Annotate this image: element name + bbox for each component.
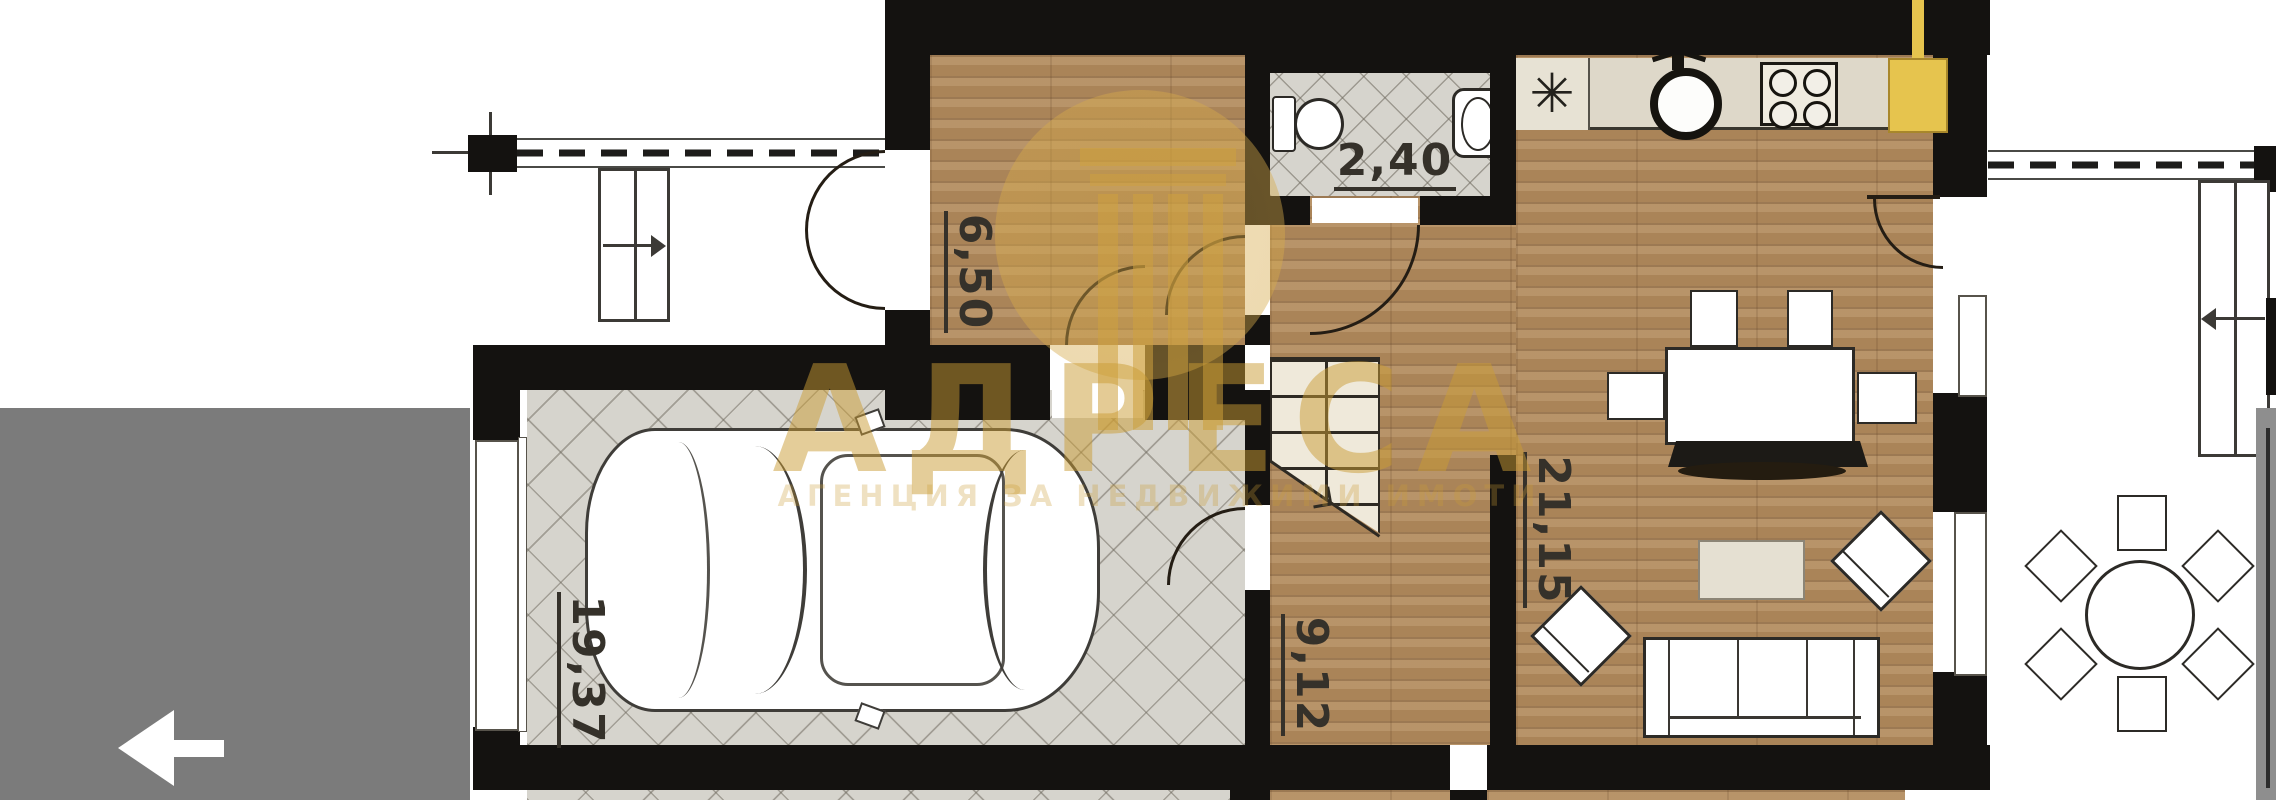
entrance-walkway — [598, 168, 670, 322]
hall-door-opening — [1247, 227, 1268, 313]
lower-unit-wall-pier — [1230, 790, 1270, 800]
bathroom-top-wall — [1270, 55, 1516, 73]
right-exterior-wall — [1933, 393, 1987, 512]
bathroom-bottom-wall — [1420, 196, 1516, 225]
garage-front-wall — [1145, 345, 1245, 390]
corridor-area-label: 9,12 — [1284, 613, 1334, 737]
dining-chair — [1690, 290, 1738, 347]
sofa — [1643, 637, 1880, 738]
terrace-chair — [2024, 627, 2098, 701]
terrace-chair — [2181, 627, 2255, 701]
walkway-arrow-left-icon — [2201, 308, 2216, 330]
stove-burner — [1803, 69, 1831, 97]
terrace-chair — [2181, 529, 2255, 603]
fence-post-tick — [489, 172, 492, 195]
bathroom-area-label: 2,40 — [1340, 138, 1450, 188]
staircase-direction-arrow-icon — [1310, 486, 1332, 508]
back-button[interactable] — [100, 700, 250, 795]
terrace-table — [2085, 560, 2195, 670]
tv-stand — [1678, 462, 1846, 480]
hall-garage-wall — [1145, 390, 1245, 420]
neighbor-wall-sliver — [2266, 298, 2276, 395]
hall-right-wall-upper — [1245, 55, 1270, 225]
boiler-icon: ✳ — [1529, 67, 1574, 121]
garage-left-wall-upper — [473, 345, 520, 440]
stove-burner — [1769, 69, 1797, 97]
bottom-exterior-wall — [473, 745, 1450, 790]
hall-area-label: 6,50 — [947, 217, 997, 327]
stove — [1760, 62, 1838, 126]
entry-left-wall-upper — [885, 0, 930, 150]
rug — [1698, 540, 1805, 600]
right-exterior-wall — [1933, 672, 1987, 745]
bathroom-bottom-wall — [1270, 196, 1310, 225]
stove-burner — [1769, 101, 1797, 129]
bottom-wall-gap — [1450, 745, 1487, 790]
bottom-exterior-wall — [1487, 745, 1990, 790]
entrance-door-swing — [805, 230, 885, 310]
garage-front-wall — [473, 345, 1050, 390]
garage-area-label: 19,37 — [560, 600, 610, 740]
lower-unit-floor-strip — [527, 790, 1230, 800]
car-roof — [820, 454, 1005, 686]
stove-burner — [1803, 101, 1831, 129]
lower-unit-floor-strip — [1270, 790, 1450, 800]
corridor-garage-door-opening — [1247, 507, 1268, 588]
chimney-duct — [1912, 0, 1924, 58]
garage-right-wall-lower — [1245, 590, 1270, 745]
lower-unit-wall-pier — [1450, 790, 1487, 800]
fence-post-left — [468, 135, 517, 172]
fence-post-tick — [432, 151, 468, 154]
neighbor-garden-wall — [2256, 408, 2276, 800]
terrace-chair — [2117, 676, 2167, 732]
walkway-arrow-right-icon — [651, 235, 666, 257]
kitchen-sink — [1650, 68, 1722, 140]
refrigerator — [1888, 58, 1948, 133]
garage-right-wall-upper — [1245, 390, 1270, 505]
garage-door — [475, 440, 519, 731]
dining-chair — [1787, 290, 1833, 347]
dining-chair — [1607, 372, 1665, 420]
car-hood-line — [647, 442, 710, 698]
garage-door-outer-sill — [518, 437, 527, 732]
lower-unit-floor-strip — [1487, 790, 1905, 800]
corridor-living-wall — [1490, 455, 1516, 745]
living-room-area-label: 21,15 — [1526, 460, 1576, 600]
hall-garage-wall — [885, 390, 1050, 420]
boiler-box: ✳ — [1516, 58, 1590, 130]
front-fence-left — [517, 138, 885, 168]
car-rear-window — [983, 450, 1067, 690]
terrace-chair — [2117, 495, 2167, 551]
front-fence-right — [1988, 150, 2254, 180]
car — [585, 428, 1100, 712]
fence-post-tick — [489, 112, 492, 135]
floor-plan-viewer: ✳ — [0, 0, 2276, 800]
car-windshield — [703, 446, 807, 694]
toilet-tank — [1272, 96, 1296, 152]
dining-chair — [1857, 372, 1917, 424]
hall-garage-door-opening — [1052, 347, 1143, 418]
top-exterior-wall — [885, 0, 1990, 55]
entrance-door-opening — [885, 150, 930, 310]
terrace-chair — [2024, 529, 2098, 603]
bathroom-door-opening — [1312, 198, 1418, 223]
living-window — [1958, 295, 1987, 397]
bathroom-right-wall — [1490, 55, 1516, 196]
dining-table — [1665, 347, 1855, 445]
hall-right-wall-lower — [1245, 315, 1270, 345]
living-window — [1954, 512, 1987, 676]
